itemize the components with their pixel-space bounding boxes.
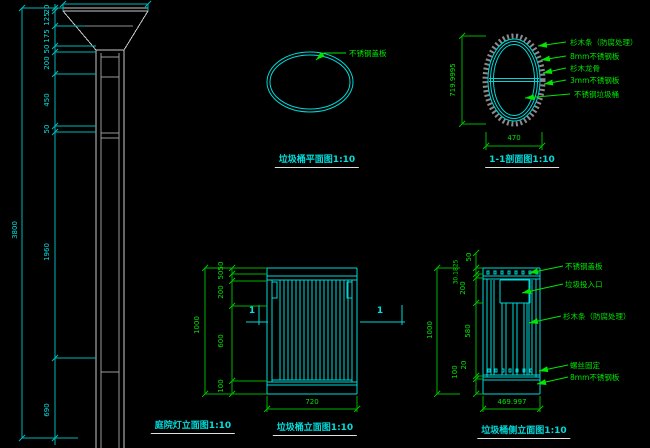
bin-side-elevation (483, 268, 540, 394)
dim-lamp-50a: 50 (43, 45, 51, 54)
view-title-bin-plan: 垃圾桶平面图1:10 (275, 152, 359, 168)
dim-front-50a: 50 (217, 262, 225, 271)
section-label-wood-strip: 杉木条（防腐处理） (570, 37, 638, 48)
dim-front-overall-1000: 1000 (193, 316, 201, 334)
section-label-inner-bin: 不锈钢垃圾桶 (574, 89, 619, 100)
dim-side-200: 200 (459, 281, 467, 294)
view-title-bin-front: 垃圾桶立面图1:10 (273, 420, 357, 436)
dim-lamp-50b: 50 (43, 125, 51, 134)
dim-section-width: 470 (507, 134, 520, 142)
side-label-8mm-plate: 8mm不锈钢板 (570, 372, 619, 383)
dim-side-100: 100 (451, 365, 459, 378)
side-label-screw-fix: 螺丝固定 (570, 360, 600, 371)
side-label-trash-inlet: 垃圾投入口 (565, 279, 603, 290)
bin-plan-view (267, 52, 353, 112)
view-title-lamp-elevation: 庭院灯立面图1:10 (151, 418, 235, 434)
lamp-dimension-lines (19, 1, 151, 445)
dim-lamp-175: 175 (43, 29, 51, 42)
section-label-wood-keel: 杉木龙骨 (570, 63, 600, 74)
section-1-1-view (459, 33, 570, 150)
section-cut-marker-left: 1 (249, 306, 255, 316)
dim-lamp-450: 450 (43, 93, 51, 106)
cad-drawing-canvas: 20 125 175 50 200 450 50 1960 690 3800 不… (0, 0, 650, 448)
side-label-cover-plate: 不锈钢盖板 (565, 261, 603, 272)
dim-side-overall-1000: 1000 (426, 321, 434, 339)
plan-label-cover-plate: 不锈钢盖板 (349, 48, 387, 59)
bin-front-elevation (246, 268, 405, 394)
dim-lamp-overall-3800: 3800 (11, 221, 19, 239)
dim-lamp-690: 690 (43, 403, 51, 416)
dim-front-100: 100 (217, 379, 225, 392)
side-label-wood-strip: 杉木条（防腐处理） (563, 311, 631, 322)
dim-front-200: 200 (217, 285, 225, 298)
dim-side-580: 580 (464, 324, 472, 337)
view-title-section-1-1: 1-1剖面图1:10 (485, 152, 559, 168)
dim-front-width-720: 720 (305, 398, 318, 406)
dim-side-50: 50 (465, 253, 473, 262)
section-label-3mm-plate: 3mm不锈钢板 (570, 75, 619, 86)
dim-lamp-200: 200 (43, 56, 51, 69)
section-cut-marker-right: 1 (377, 306, 383, 316)
dim-lamp-125: 125 (43, 12, 51, 25)
dim-side-20: 20 (460, 361, 468, 370)
view-title-bin-side: 垃圾桶侧立面图1:10 (477, 423, 570, 439)
dim-side-width-469: 469.997 (498, 398, 527, 406)
dim-lamp-1960: 1960 (43, 243, 51, 261)
cad-linework (0, 0, 650, 448)
section-label-8mm-plate: 8mm不锈钢板 (570, 51, 619, 62)
dim-front-50b: 50 (217, 271, 225, 280)
dim-section-height: 719.9995 (449, 63, 457, 96)
dim-front-600: 600 (217, 334, 225, 347)
